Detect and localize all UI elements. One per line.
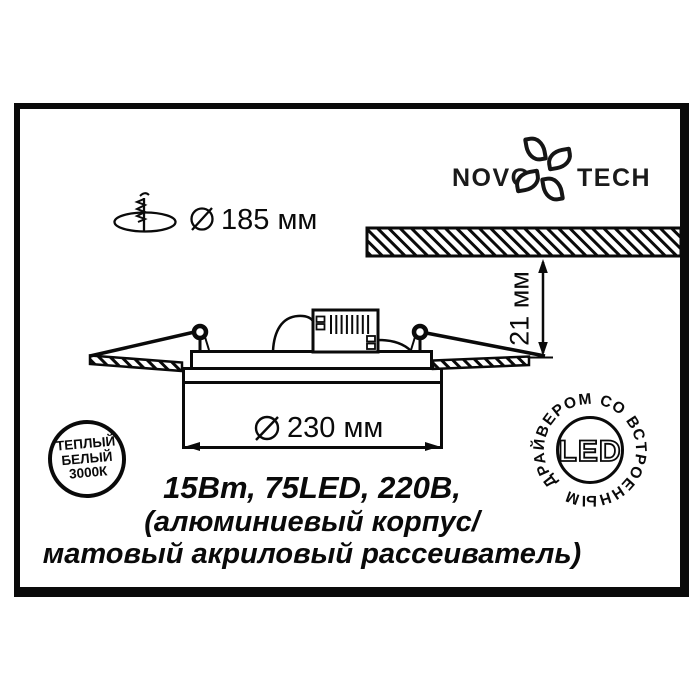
flower-petal bbox=[513, 168, 542, 193]
led-driver-badge: ДРАЙВЕРОМ СО ВСТРОЕННЫМ LED bbox=[528, 388, 652, 512]
led-badge-center-text: LED bbox=[559, 435, 622, 468]
diagram-canvas: 185 мм 230 мм 21 мм NOVO TECH 15Вт, 75LE… bbox=[0, 0, 700, 700]
brand-name-right: TECH bbox=[577, 164, 651, 193]
spec-line-diffuser: матовый акриловый рассеиватель) bbox=[12, 538, 612, 570]
cutout-diameter-label: 185 мм bbox=[221, 204, 317, 237]
recess-depth-label: 21 мм bbox=[505, 259, 536, 359]
body-diameter-label: 230 мм bbox=[287, 412, 383, 445]
badge-line: 3000К bbox=[69, 465, 108, 483]
flower-petal bbox=[545, 146, 574, 171]
flower-petal bbox=[540, 174, 565, 203]
brand-flower-icon bbox=[517, 136, 577, 206]
spec-line-housing: (алюминиевый корпус/ bbox=[12, 506, 612, 538]
flower-petal bbox=[523, 134, 548, 163]
